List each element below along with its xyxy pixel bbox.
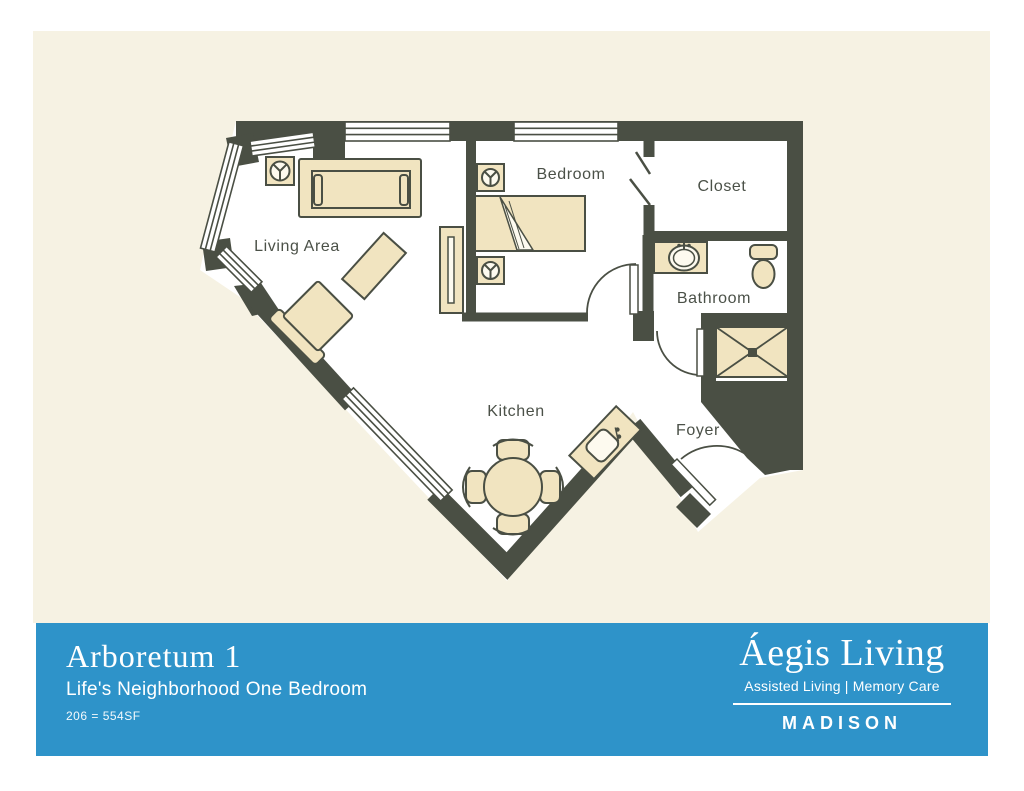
brand-tagline: Assisted Living | Memory Care xyxy=(722,678,962,694)
window xyxy=(345,122,450,141)
unit-area: 206 = 554SF xyxy=(66,709,367,723)
unit-info-block: Arboretum 1 Life's Neighborhood One Bedr… xyxy=(66,639,367,723)
tv-console xyxy=(440,227,463,313)
nightstand-icon xyxy=(477,257,504,284)
room-label-foyer: Foyer xyxy=(676,422,720,439)
nightstand-icon xyxy=(477,164,504,191)
wall xyxy=(701,313,790,327)
info-banner: Arboretum 1 Life's Neighborhood One Bedr… xyxy=(36,623,988,756)
room-label-living-area: Living Area xyxy=(254,238,340,255)
brand-location: MADISON xyxy=(722,713,962,734)
sofa xyxy=(299,159,421,217)
brand-logo: Áegis Living Assisted Living | Memory Ca… xyxy=(722,633,962,734)
room-label-bedroom: Bedroom xyxy=(536,166,605,183)
room-label-bathroom: Bathroom xyxy=(677,290,751,307)
bed xyxy=(475,196,585,251)
window xyxy=(514,122,618,141)
unit-subtitle: Life's Neighborhood One Bedroom xyxy=(66,679,367,701)
toilet xyxy=(750,245,777,288)
brand-name: Áegis Living xyxy=(722,633,962,675)
side-table-icon xyxy=(266,157,294,185)
room-label-kitchen: Kitchen xyxy=(487,403,545,420)
room-label-closet: Closet xyxy=(698,178,747,195)
wall xyxy=(313,121,345,158)
unit-title: Arboretum 1 xyxy=(66,639,367,674)
floorplan-page: Living Area Bedroom Closet Bathroom Kitc… xyxy=(0,0,1024,791)
shower xyxy=(716,327,788,377)
logo-divider xyxy=(733,703,951,705)
bathroom-sink xyxy=(654,242,707,273)
